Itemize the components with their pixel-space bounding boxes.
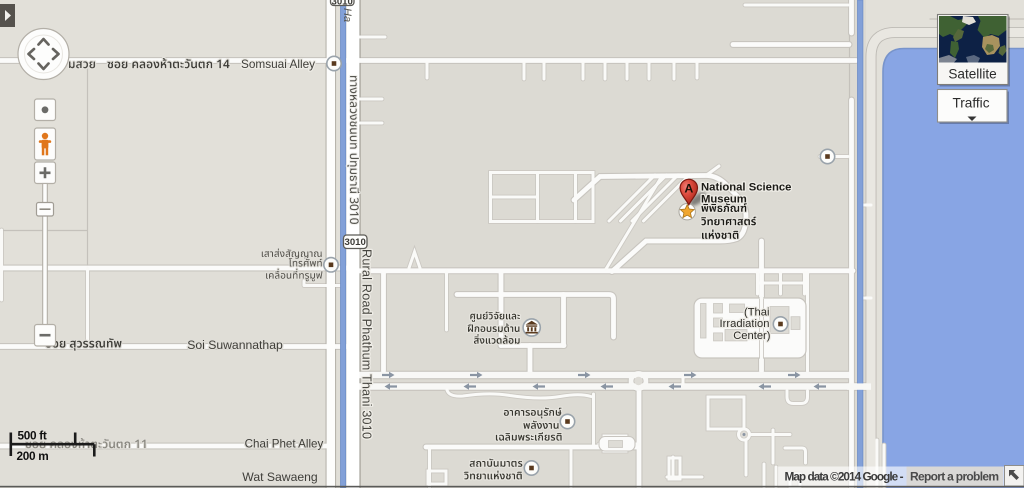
svg-text:Map data ©2014 Google -: Map data ©2014 Google - [785, 470, 904, 484]
svg-text:Traffic: Traffic [952, 96, 989, 111]
svg-text:200 m: 200 m [17, 449, 49, 463]
svg-text:(Thai: (Thai [744, 306, 770, 318]
svg-text:A: A [684, 181, 693, 195]
svg-text:Satellite: Satellite [948, 67, 996, 82]
svg-text:3010: 3010 [345, 237, 366, 248]
svg-text:Ha: Ha [341, 8, 353, 22]
svg-text:Wat Sawaeng: Wat Sawaeng [242, 470, 317, 484]
svg-text:500 ft: 500 ft [18, 429, 47, 443]
svg-text:Somsuai Alley: Somsuai Alley [241, 57, 315, 71]
svg-text:Center): Center) [733, 330, 771, 342]
svg-text:Chai Phet Alley: Chai Phet Alley [245, 438, 324, 451]
svg-text:Soi Suwannathap: Soi Suwannathap [187, 338, 283, 352]
svg-text:Report a problem: Report a problem [910, 470, 999, 484]
svg-text:National Science: National Science [701, 181, 791, 193]
svg-text:3010: 3010 [332, 0, 353, 8]
svg-text:Irradiation: Irradiation [720, 318, 770, 330]
svg-text:Rural Road Phathum Thani 3010: Rural Road Phathum Thani 3010 [360, 249, 374, 439]
